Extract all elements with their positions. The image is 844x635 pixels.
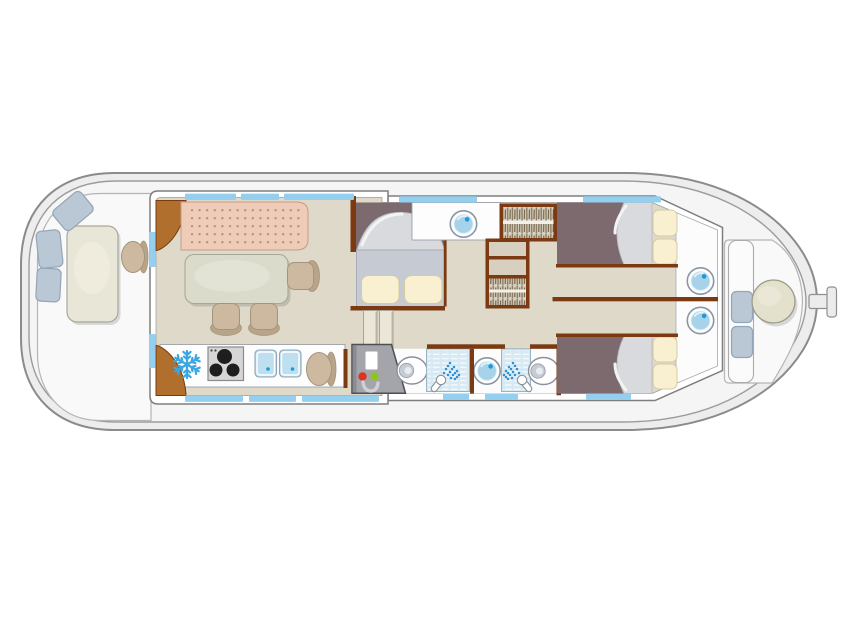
window xyxy=(284,194,354,200)
helm-seat-sheen xyxy=(757,286,781,306)
shower xyxy=(427,349,470,393)
window xyxy=(586,394,631,400)
bathroom-wall xyxy=(530,344,557,349)
bed-frame-rail xyxy=(556,264,678,268)
window xyxy=(185,194,236,200)
toilet xyxy=(529,358,559,385)
toilet xyxy=(397,357,427,384)
indicator-red xyxy=(358,372,366,380)
bathroom-wall xyxy=(427,344,505,349)
pillow xyxy=(653,210,677,236)
bow-table-sheen xyxy=(74,242,110,294)
folding-door-leaf xyxy=(380,311,394,349)
bow-deck xyxy=(36,189,151,420)
window xyxy=(583,196,661,202)
dining-chair xyxy=(249,304,280,336)
entry-door-window xyxy=(149,232,155,267)
window xyxy=(249,396,296,402)
galley-chair xyxy=(307,352,337,386)
window xyxy=(302,396,379,402)
bow-seat-cushion xyxy=(36,268,62,302)
window xyxy=(185,396,243,402)
bed-frame-rail xyxy=(556,334,678,338)
mid-cabin-aft-wall xyxy=(351,306,446,311)
mid-cabin-forward-wall xyxy=(351,196,357,252)
pillow xyxy=(653,239,677,264)
folding-door-leaf xyxy=(364,311,378,349)
mid-cabin-side-wall xyxy=(444,240,447,307)
dining-chair xyxy=(211,304,242,336)
cabin-washbasin xyxy=(687,307,713,333)
dining-chair xyxy=(288,261,320,292)
mid-bed-pillow xyxy=(405,276,443,304)
mid-bed-pillow xyxy=(362,276,400,304)
hanging-wardrobe xyxy=(500,204,558,242)
bathroom-forward xyxy=(352,345,470,394)
pillow xyxy=(653,364,677,389)
dining-table-sheen xyxy=(194,260,270,292)
window xyxy=(443,394,469,400)
indicator-green xyxy=(370,372,378,380)
boat-floor-plan-page xyxy=(0,0,844,635)
pillow xyxy=(653,337,677,362)
stern-bench-cushion xyxy=(732,327,753,358)
washbasin xyxy=(474,358,500,384)
stove xyxy=(208,347,244,381)
cabin-washbasin xyxy=(687,268,713,294)
window xyxy=(399,196,477,202)
shelf-unit xyxy=(486,239,530,309)
bathroom-divider-wall xyxy=(470,349,474,394)
galley-partition-wall xyxy=(344,349,348,388)
entry-door-window xyxy=(149,334,155,368)
sofa-upholstery-dots xyxy=(187,208,301,245)
window xyxy=(241,194,279,200)
tiller-head xyxy=(827,287,837,317)
window xyxy=(485,394,518,400)
aft-cabins xyxy=(553,203,719,394)
stern-bench-cushion xyxy=(732,292,753,323)
boat-floor-plan xyxy=(0,0,844,635)
vanity-washbasin xyxy=(450,211,476,237)
bow-seat-cushion xyxy=(36,229,64,268)
aft-corridor-wall xyxy=(553,297,719,301)
skipper-chair xyxy=(122,241,149,273)
